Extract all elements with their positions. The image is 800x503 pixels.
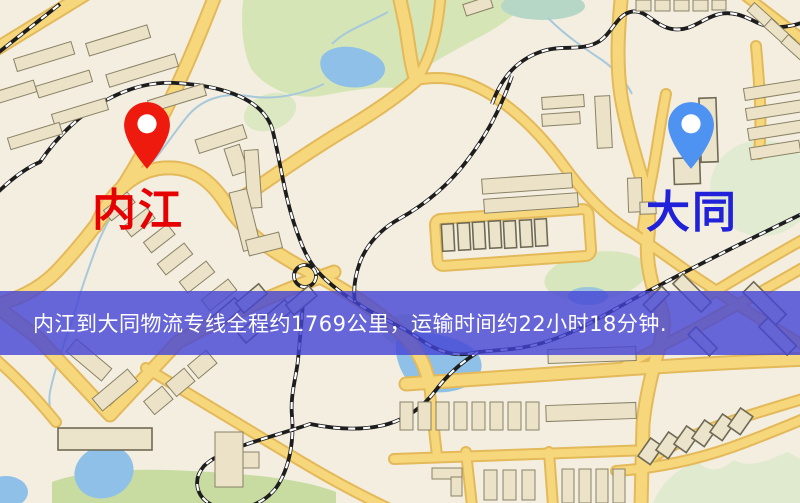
origin-pin-hole <box>137 114 156 133</box>
origin-city-label: 内江 <box>92 174 184 238</box>
origin-pin-shape <box>124 102 170 169</box>
destination-pin-shape <box>668 102 714 169</box>
destination-map-pin-icon[interactable] <box>666 99 716 172</box>
destination-pin-hole <box>681 114 700 133</box>
map-screenshot: 内江到大同物流专线全程约1769公里，运输时间约22小时18分钟. 内江 大同 <box>0 0 800 503</box>
map-canvas[interactable] <box>0 0 800 503</box>
route-info-text: 内江到大同物流专线全程约1769公里，运输时间约22小时18分钟. <box>0 308 667 338</box>
route-info-banner: 内江到大同物流专线全程约1769公里，运输时间约22小时18分钟. <box>0 291 800 355</box>
destination-city-label: 大同 <box>646 176 738 240</box>
origin-map-pin-icon[interactable] <box>122 99 172 172</box>
